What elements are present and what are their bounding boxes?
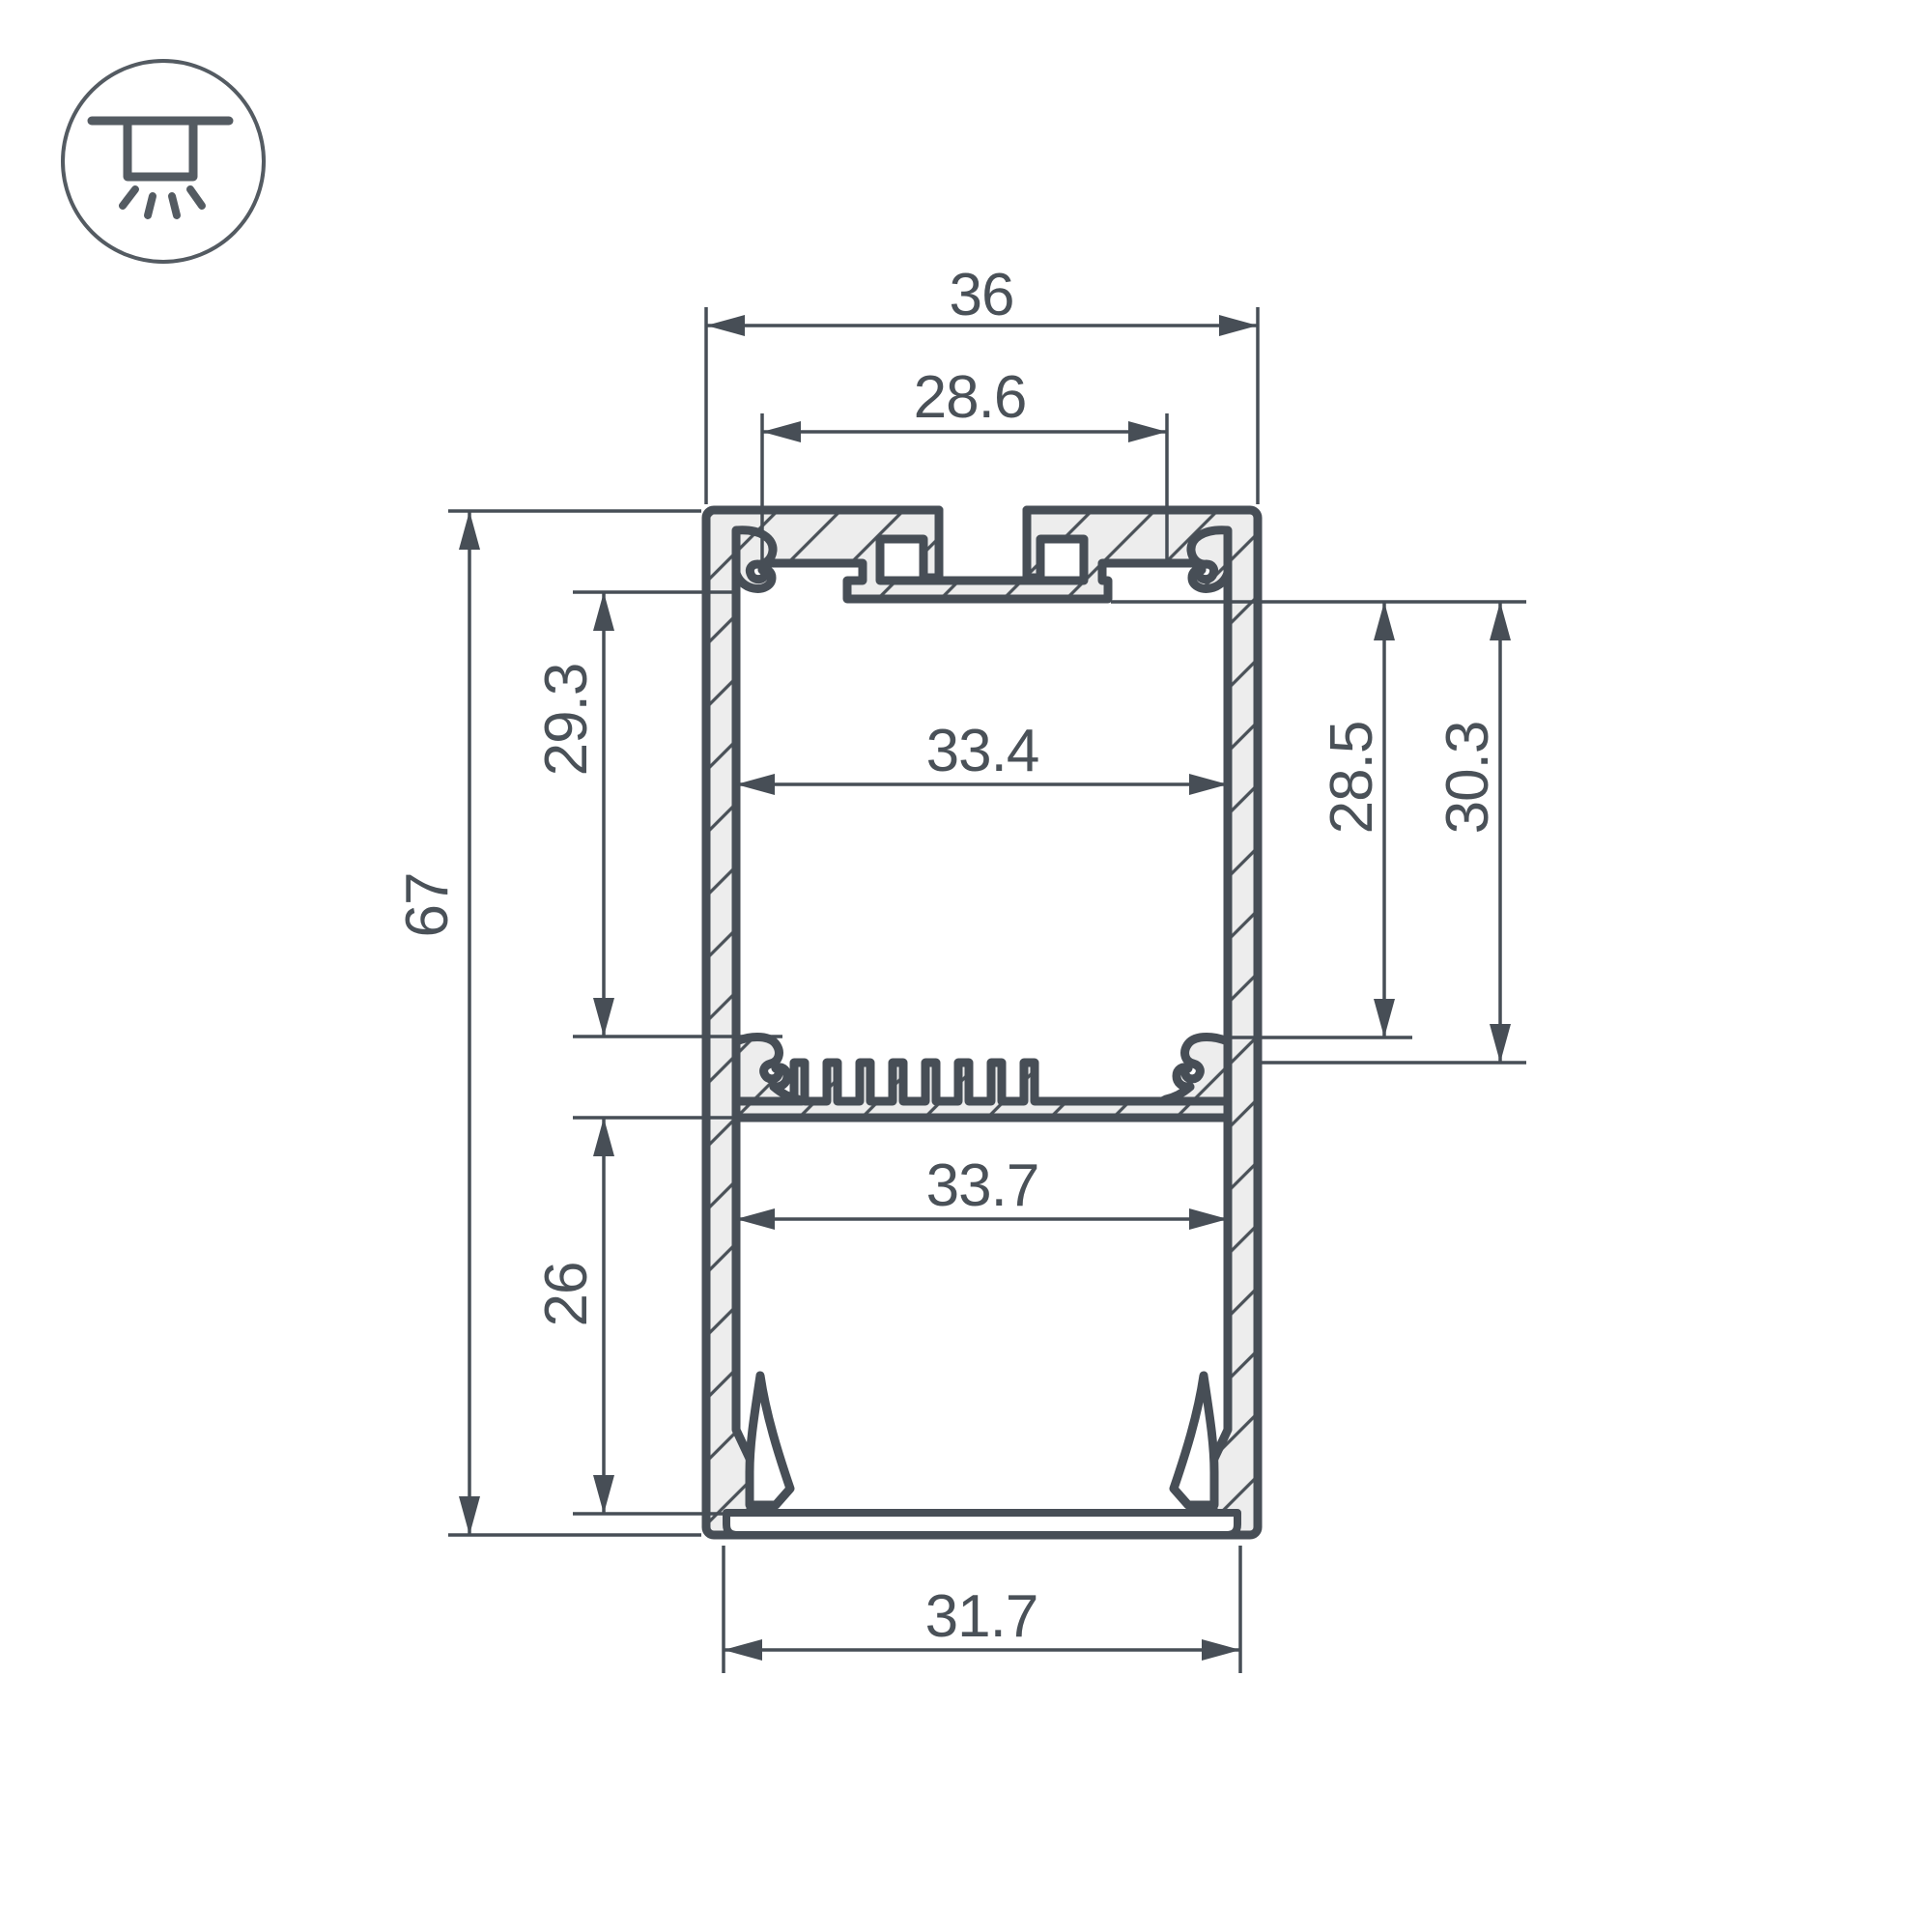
- dim-height-to-ledge: 28.5: [1319, 722, 1385, 835]
- clip-left: [750, 1376, 790, 1505]
- dimension-lines: [469, 326, 1500, 1650]
- heatsink-web: [736, 1063, 1228, 1118]
- screw-bosses: [736, 530, 1228, 1101]
- drawing-canvas: 36 28.6 33.4 33.7 31.7 29.3 67 26 28.5 3…: [0, 0, 1932, 1932]
- diffuser-clips: [750, 1376, 1214, 1505]
- screw-boss-mid-right: [1162, 1037, 1228, 1101]
- upper-chamber-contour: [736, 563, 1228, 1101]
- dimension-arrows: [459, 315, 1511, 1661]
- dim-total-height: 67: [394, 873, 461, 938]
- profile-outline: [706, 510, 1258, 1535]
- extension-lines: [448, 307, 1526, 1673]
- dim-lower-chamber-height: 26: [533, 1263, 600, 1327]
- dim-mount-slot-width: 28.6: [914, 364, 1027, 431]
- dim-bottom-width: 31.7: [925, 1583, 1038, 1650]
- screw-boss-top-right: [1191, 530, 1228, 589]
- dim-height-to-fins: 30.3: [1435, 722, 1501, 835]
- outer-contour: [706, 510, 1258, 1535]
- diffuser-plate: [726, 1513, 1237, 1535]
- profile-cross-section-drawing: 36 28.6 33.4 33.7 31.7 29.3 67 26 28.5 3…: [0, 0, 1932, 1932]
- ceiling-mounted-luminaire-icon: [63, 61, 264, 262]
- dim-lower-inner-width: 33.7: [926, 1152, 1039, 1219]
- dimension-labels: 36 28.6 33.4 33.7 31.7 29.3 67 26 28.5 3…: [394, 262, 1501, 1650]
- screw-boss-top-left: [736, 530, 773, 589]
- dim-upper-chamber-height: 29.3: [533, 664, 600, 777]
- dim-top-width: 36: [950, 262, 1014, 328]
- clip-right: [1174, 1376, 1214, 1505]
- dim-upper-inner-width: 33.4: [926, 718, 1039, 784]
- profile-body-fill: [706, 510, 1258, 1535]
